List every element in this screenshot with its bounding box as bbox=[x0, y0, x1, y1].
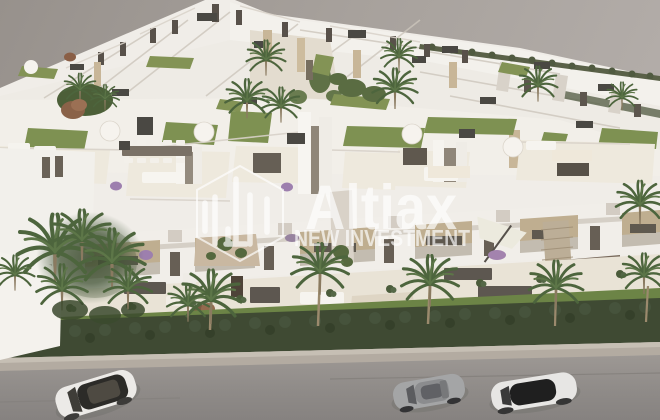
svg-text:NEW INVESTMENT: NEW INVESTMENT bbox=[294, 225, 470, 251]
